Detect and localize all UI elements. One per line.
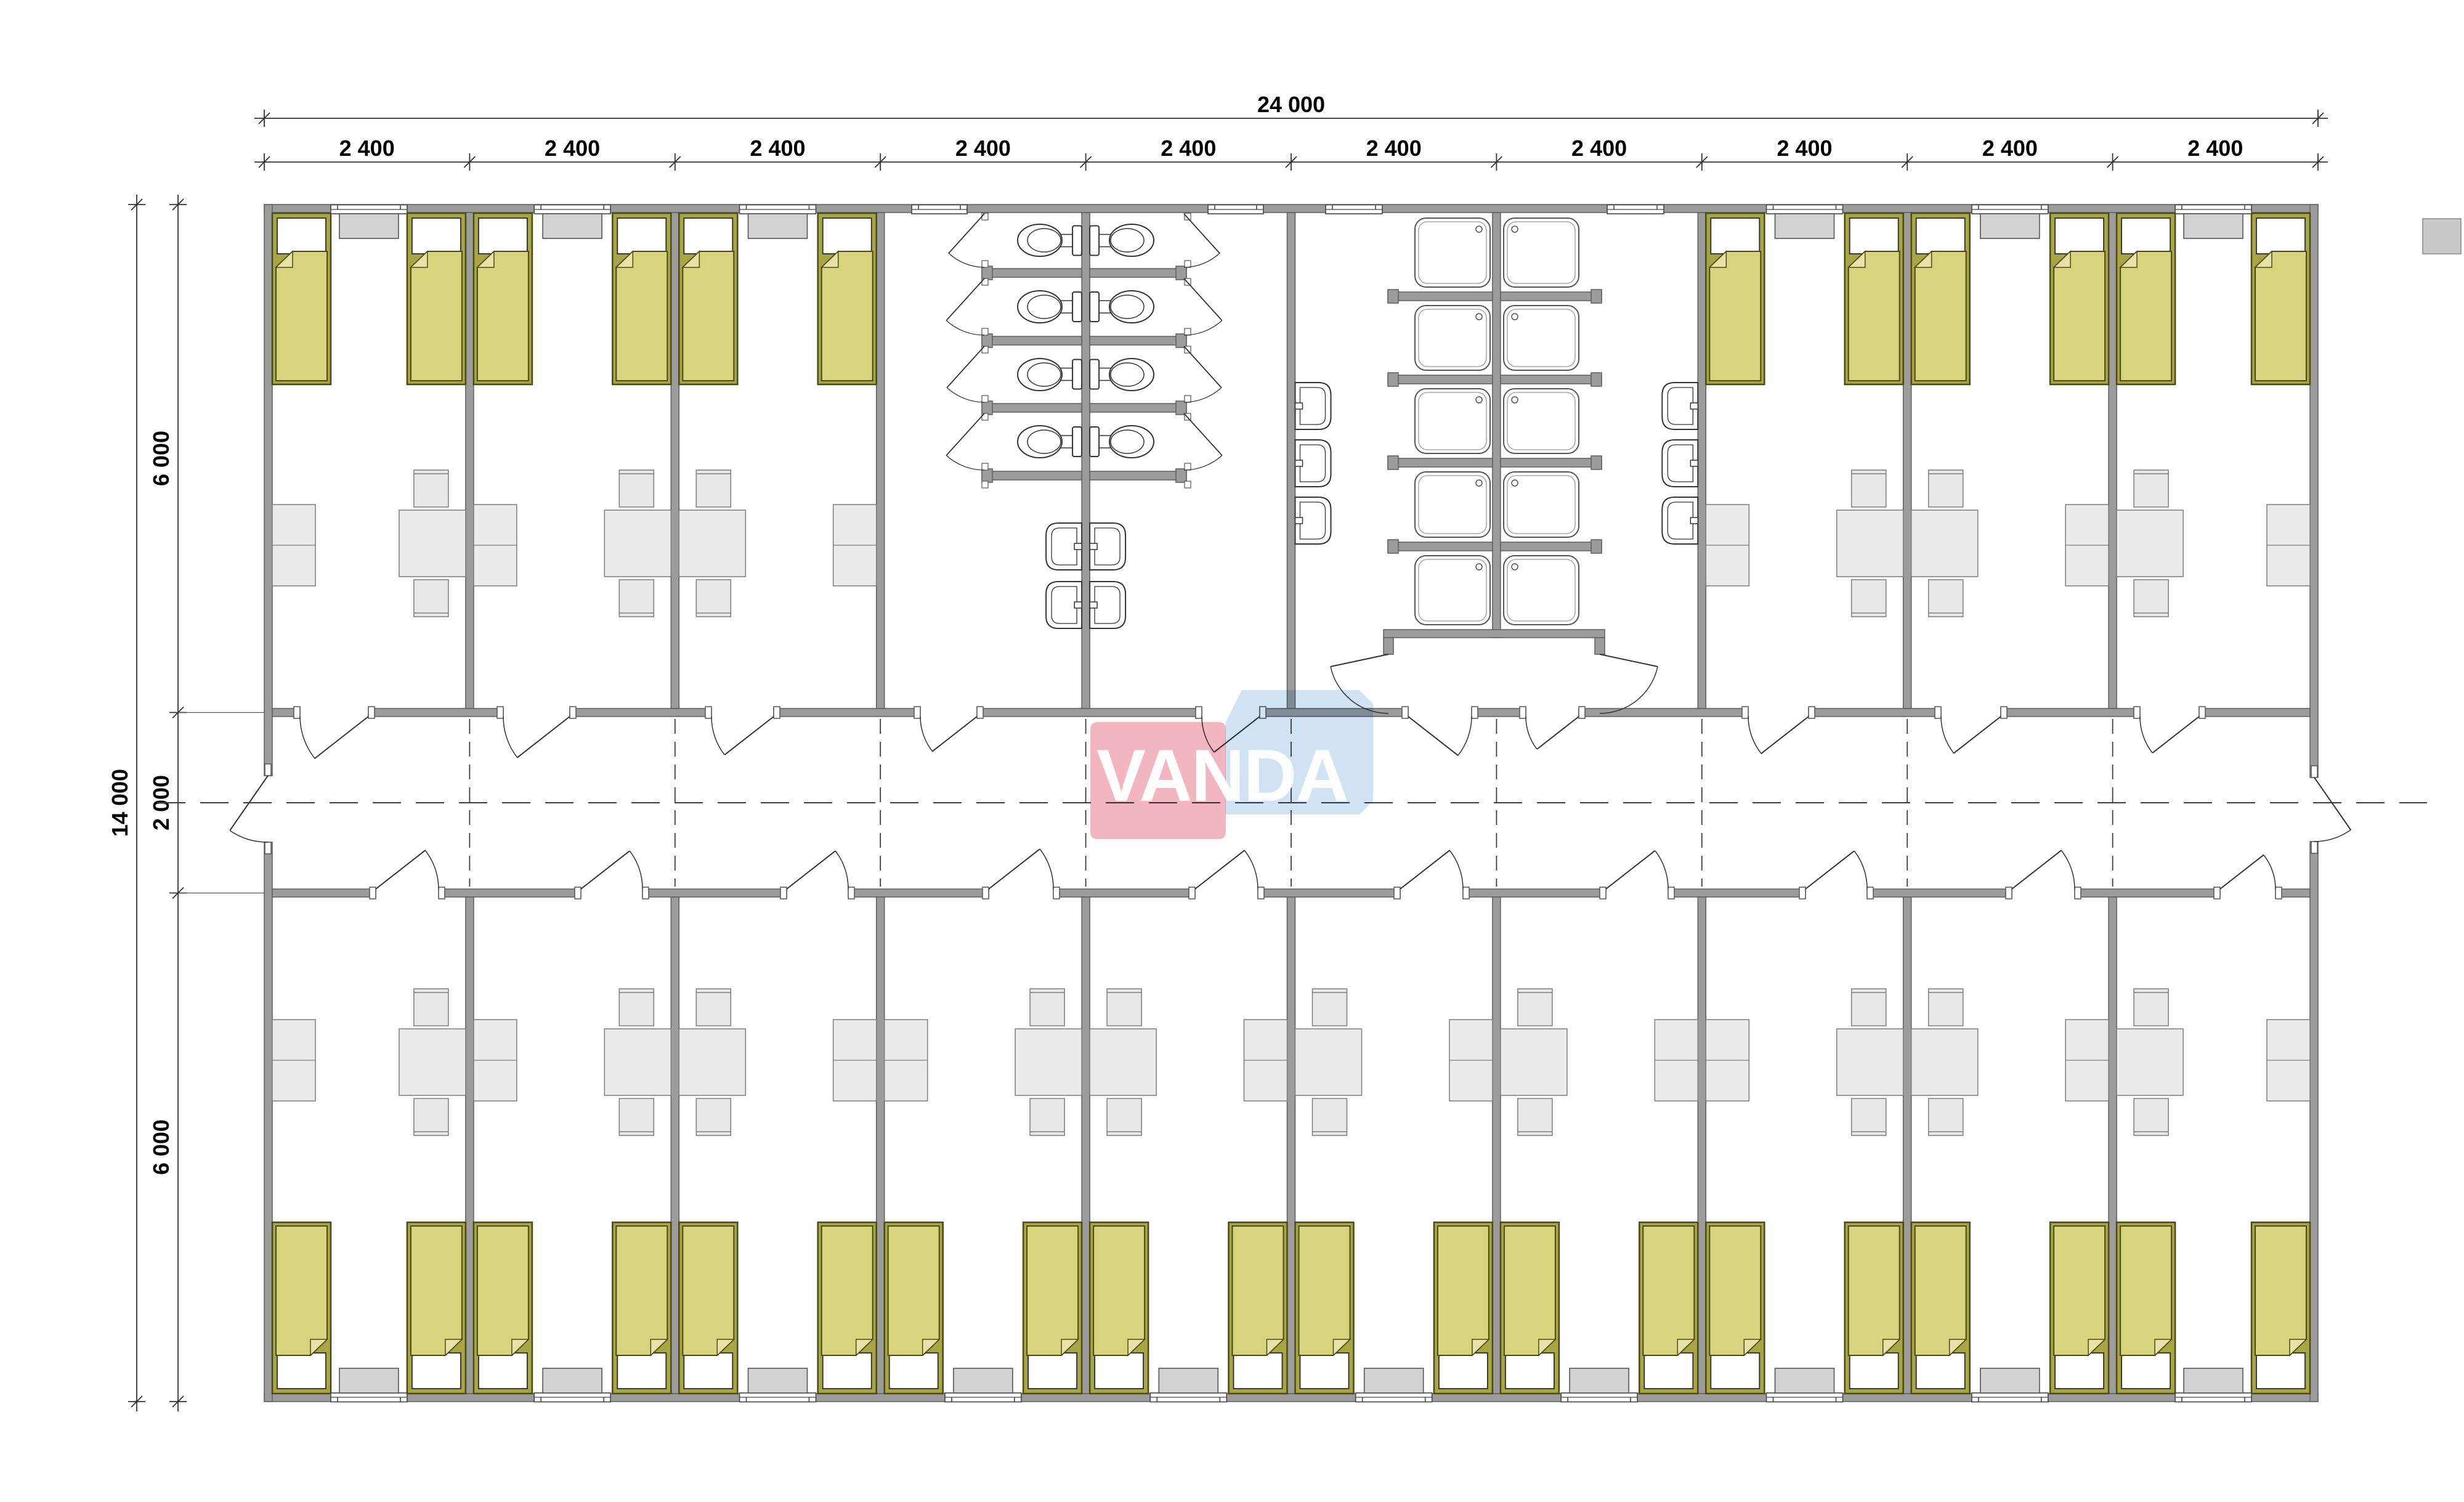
svg-text:2 400: 2 400: [339, 136, 395, 161]
svg-text:2 400: 2 400: [1777, 136, 1832, 161]
svg-text:14 000: 14 000: [107, 769, 132, 837]
svg-text:2 400: 2 400: [1571, 136, 1627, 161]
svg-text:6 000: 6 000: [148, 1119, 174, 1175]
svg-text:2 400: 2 400: [750, 136, 805, 161]
svg-text:2 400: 2 400: [545, 136, 600, 161]
svg-text:6 000: 6 000: [148, 431, 174, 486]
svg-text:24 000: 24 000: [1257, 92, 1325, 117]
svg-text:2 400: 2 400: [955, 136, 1011, 161]
svg-text:2 400: 2 400: [1982, 136, 2038, 161]
svg-text:2 400: 2 400: [1161, 136, 1216, 161]
svg-text:2 400: 2 400: [2187, 136, 2243, 161]
svg-text:2 400: 2 400: [1366, 136, 1422, 161]
svg-text:VANDA: VANDA: [1096, 734, 1348, 817]
